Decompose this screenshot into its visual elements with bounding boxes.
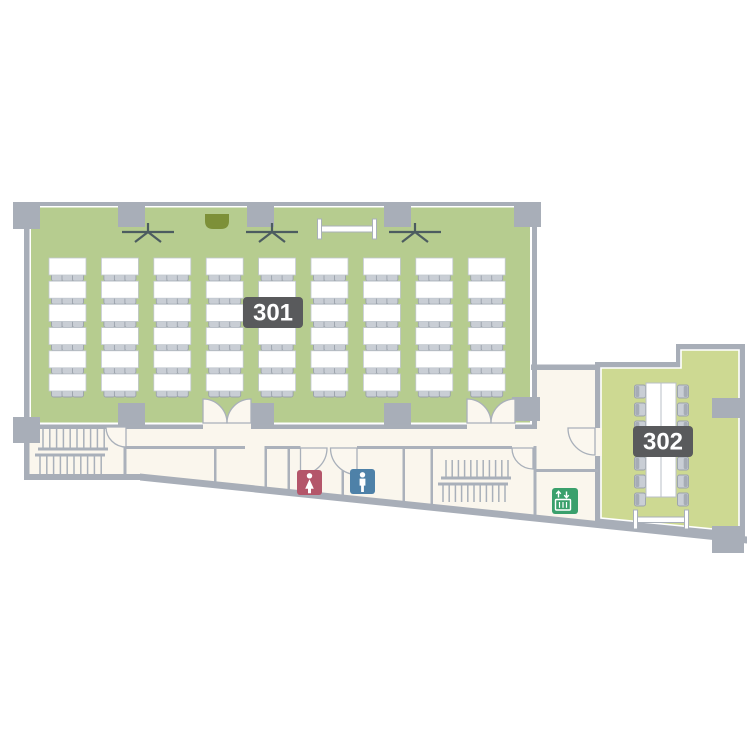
desk (363, 281, 400, 298)
desk (101, 281, 138, 298)
desk (49, 374, 86, 391)
chair-back (635, 458, 639, 469)
desk (363, 304, 400, 321)
desk (259, 281, 296, 298)
desk (259, 374, 296, 391)
desk (259, 328, 296, 345)
room-302-label[interactable]: 302 (633, 426, 693, 457)
desk (101, 374, 138, 391)
desk (49, 328, 86, 345)
desk (468, 281, 505, 298)
desk (259, 351, 296, 368)
desk (311, 304, 348, 321)
desk (363, 351, 400, 368)
desk (416, 328, 453, 345)
room-302-label-text: 302 (643, 429, 683, 456)
room-301-label[interactable]: 301 (243, 297, 303, 328)
desk (468, 351, 505, 368)
desk (101, 328, 138, 345)
desk (363, 258, 400, 275)
desk (206, 258, 243, 275)
desk (416, 258, 453, 275)
desk (154, 304, 191, 321)
desk (259, 258, 296, 275)
desk (363, 328, 400, 345)
desk (49, 281, 86, 298)
desk (154, 258, 191, 275)
desk (101, 304, 138, 321)
podium-icon (205, 214, 229, 229)
chair-back (684, 494, 688, 505)
desk (311, 328, 348, 345)
desk (311, 258, 348, 275)
floor-plan-page: 301 302 (0, 0, 750, 750)
chair-back (635, 386, 639, 397)
chair-back (684, 386, 688, 397)
desk (416, 304, 453, 321)
desk (49, 258, 86, 275)
chair-back (635, 476, 639, 487)
desk (206, 374, 243, 391)
desk (468, 328, 505, 345)
desk (311, 374, 348, 391)
chair-back (635, 494, 639, 505)
desk (206, 351, 243, 368)
desk (416, 351, 453, 368)
desk (154, 374, 191, 391)
desk (101, 258, 138, 275)
elevator-icon[interactable] (552, 488, 578, 514)
desk (468, 304, 505, 321)
chair-back (684, 458, 688, 469)
desk (468, 258, 505, 275)
desk (468, 374, 505, 391)
desk (311, 281, 348, 298)
chair-back (684, 476, 688, 487)
desk (49, 351, 86, 368)
desk (311, 351, 348, 368)
chair-back (684, 404, 688, 415)
floor-plan-canvas: 301 302 (0, 0, 750, 750)
desk (49, 304, 86, 321)
womens-restroom-icon[interactable] (297, 470, 322, 495)
corridor-walls-upper (531, 365, 597, 371)
desk (416, 374, 453, 391)
desk (416, 281, 453, 298)
desk (154, 351, 191, 368)
desk (363, 374, 400, 391)
chair-back (635, 404, 639, 415)
room-301-label-text: 301 (253, 300, 293, 327)
mens-restroom-icon[interactable] (350, 469, 375, 494)
desk (154, 328, 191, 345)
desk (154, 281, 191, 298)
desk (101, 351, 138, 368)
desk (206, 304, 243, 321)
desk (206, 328, 243, 345)
desk (206, 281, 243, 298)
